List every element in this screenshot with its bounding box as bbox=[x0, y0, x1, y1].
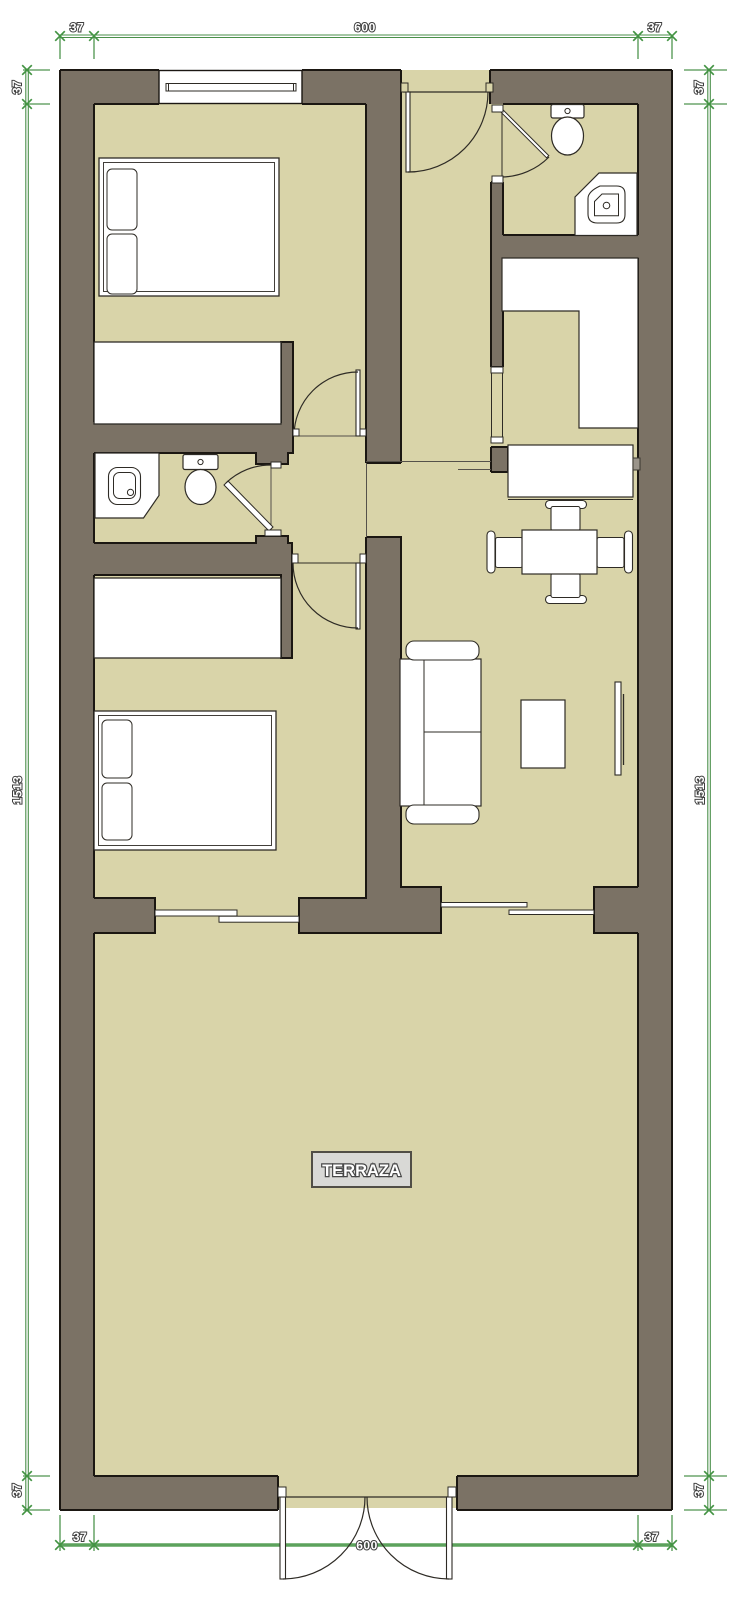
svg-text:TERRAZA: TERRAZA bbox=[322, 1162, 401, 1180]
svg-text:37: 37 bbox=[10, 80, 24, 94]
svg-text:37: 37 bbox=[645, 1530, 659, 1544]
svg-text:600: 600 bbox=[356, 1539, 378, 1553]
svg-text:37: 37 bbox=[648, 21, 662, 35]
svg-text:1513: 1513 bbox=[693, 776, 707, 805]
svg-text:37: 37 bbox=[10, 1483, 24, 1497]
svg-text:37: 37 bbox=[73, 1530, 87, 1544]
svg-text:1513: 1513 bbox=[11, 776, 25, 805]
svg-text:37: 37 bbox=[70, 21, 84, 35]
svg-text:37: 37 bbox=[692, 1483, 706, 1497]
svg-text:37: 37 bbox=[692, 80, 706, 94]
svg-text:600: 600 bbox=[354, 21, 376, 35]
